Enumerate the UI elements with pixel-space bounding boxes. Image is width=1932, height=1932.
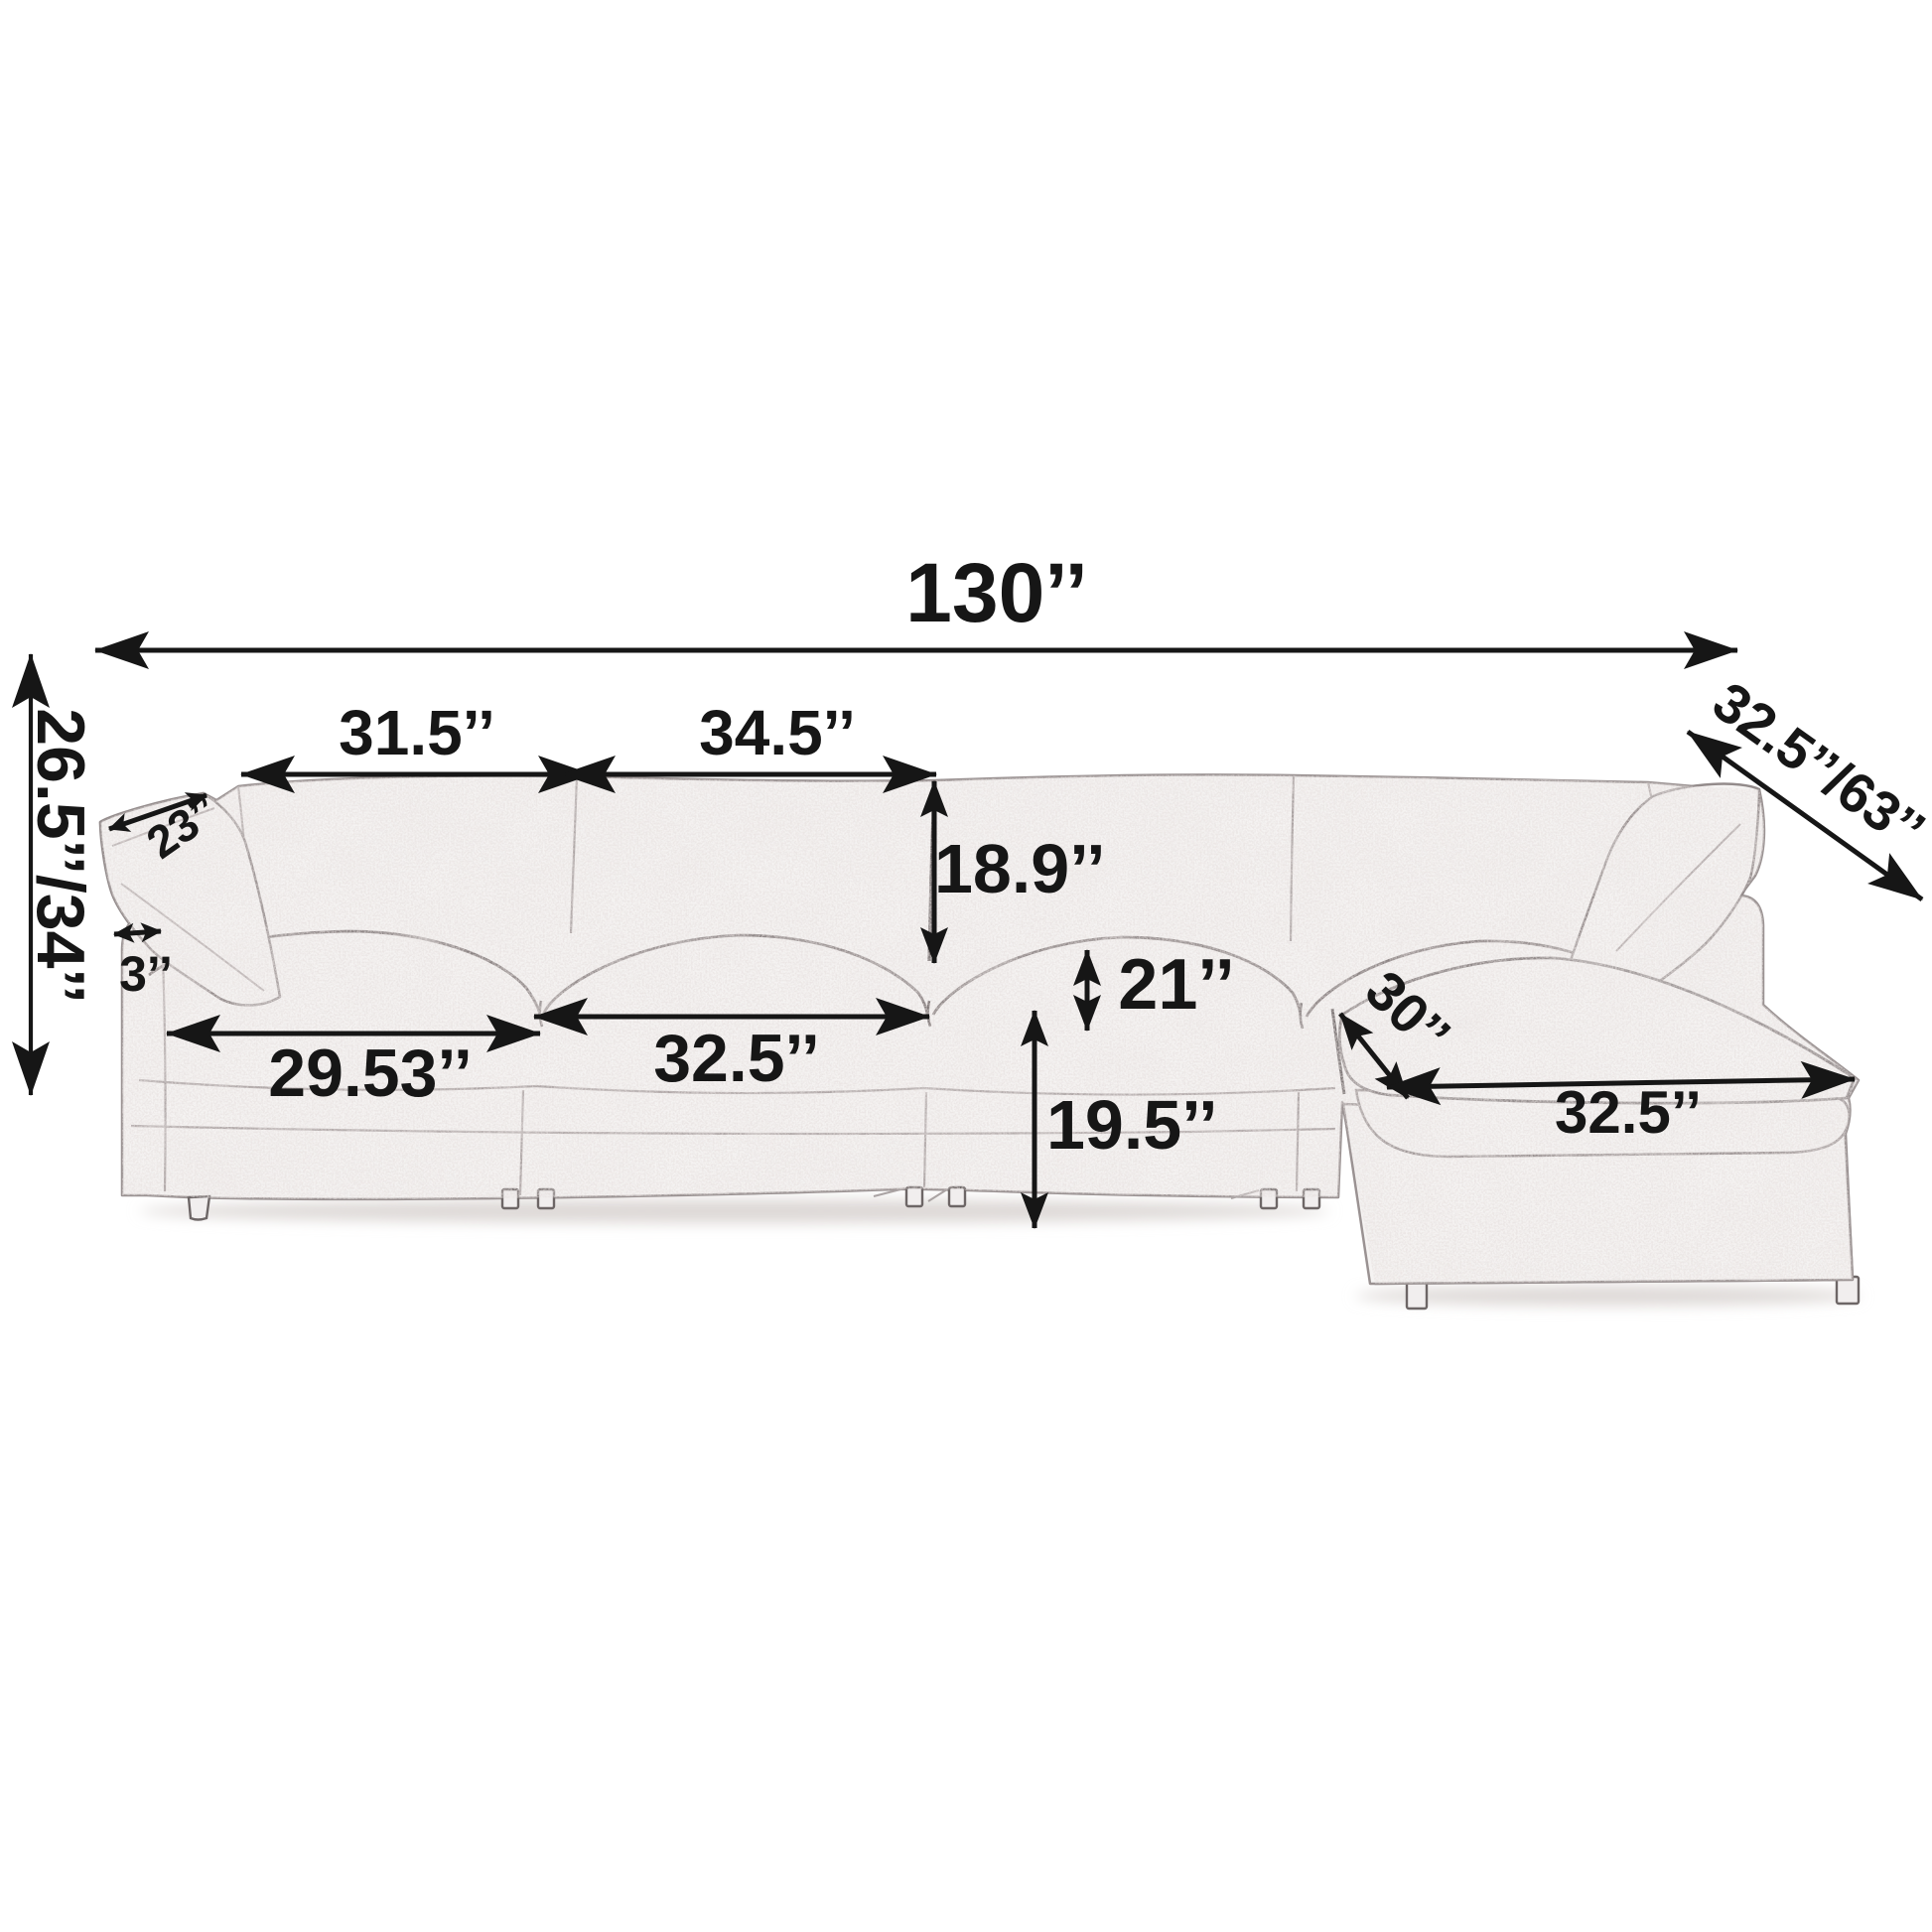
svg-text:32.5’’: 32.5’’: [1555, 1079, 1702, 1146]
svg-text:19.5’’: 19.5’’: [1046, 1086, 1218, 1164]
svg-text:31.5’’: 31.5’’: [339, 697, 495, 768]
svg-text:34.5’’: 34.5’’: [699, 697, 856, 768]
svg-text:18.9’’: 18.9’’: [934, 830, 1106, 907]
svg-text:3’’: 3’’: [119, 946, 173, 1002]
svg-text:21’’: 21’’: [1118, 945, 1234, 1025]
svg-text:29.53’’: 29.53’’: [268, 1035, 472, 1111]
svg-text:32.5’’: 32.5’’: [653, 1021, 820, 1096]
svg-text:26.5’’/34’’: 26.5’’/34’’: [23, 708, 98, 1003]
svg-text:130’’: 130’’: [905, 546, 1088, 639]
